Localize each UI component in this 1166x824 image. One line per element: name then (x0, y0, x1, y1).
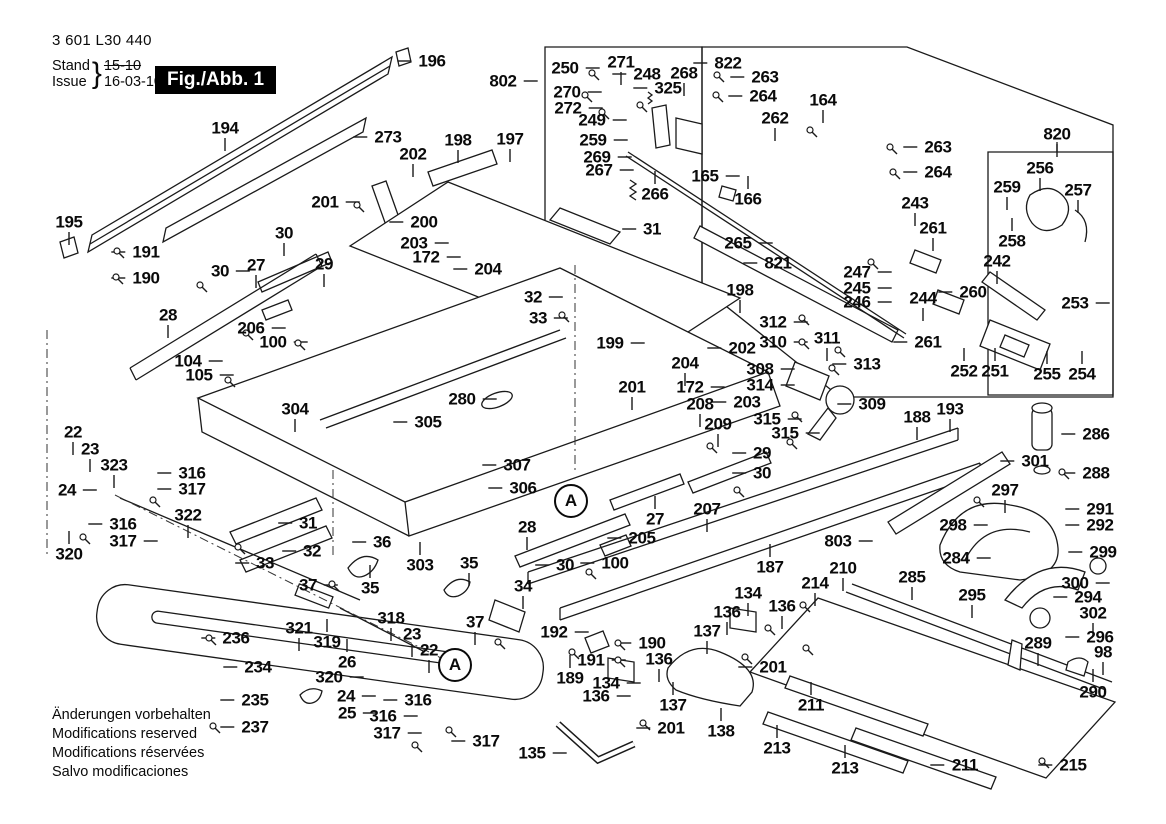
part-label-208: 208 (686, 396, 713, 413)
part-label-822: 822 (714, 55, 741, 72)
part-label-191: 191 (577, 652, 604, 669)
part-label-196: 196 (418, 53, 445, 70)
part-label-325: 325 (654, 80, 681, 97)
part-label-256: 256 (1026, 160, 1053, 177)
part-label-257: 257 (1064, 182, 1091, 199)
part-label-31: 31 (643, 221, 661, 238)
part-label-135: 135 (518, 745, 545, 762)
part-label-199: 199 (596, 335, 623, 352)
stand-label: Stand (52, 58, 90, 74)
part-label-803: 803 (824, 533, 851, 550)
part-label-105: 105 (185, 367, 212, 384)
part-label-285: 285 (898, 569, 925, 586)
part-label-306: 306 (509, 480, 536, 497)
part-label-210: 210 (829, 560, 856, 577)
figure-number-box: Fig./Abb. 1 (155, 66, 276, 94)
part-label-201: 201 (618, 379, 645, 396)
part-labels-layer: 1941951962731981972022012003020317220427… (0, 0, 1166, 824)
part-label-201: 201 (657, 720, 684, 737)
part-label-200: 200 (410, 214, 437, 231)
part-label-295: 295 (958, 587, 985, 604)
part-label-311: 311 (814, 330, 840, 347)
part-label-205: 205 (628, 530, 655, 547)
part-label-242: 242 (983, 253, 1010, 270)
part-label-265: 265 (724, 235, 751, 252)
part-label-261: 261 (914, 334, 941, 351)
part-label-204: 204 (671, 355, 698, 372)
part-label-35: 35 (460, 555, 478, 572)
part-label-195: 195 (55, 214, 82, 231)
part-label-261: 261 (919, 220, 946, 237)
part-label-235: 235 (241, 692, 268, 709)
part-label-317: 317 (178, 481, 205, 498)
part-label-198: 198 (444, 132, 471, 149)
part-label-286: 286 (1082, 426, 1109, 443)
issue-date: 16-03-10 (104, 74, 162, 90)
part-label-213: 213 (763, 740, 790, 757)
part-label-23: 23 (81, 441, 99, 458)
part-label-318: 318 (377, 610, 404, 627)
part-label-172: 172 (412, 249, 439, 266)
part-label-314: 314 (746, 377, 773, 394)
part-label-234: 234 (244, 659, 271, 676)
part-label-301: 301 (1021, 453, 1048, 470)
part-label-280: 280 (448, 391, 475, 408)
part-label-264: 264 (749, 88, 776, 105)
part-label-313: 313 (853, 356, 880, 373)
part-label-323: 323 (100, 457, 127, 474)
part-label-202: 202 (399, 146, 426, 163)
part-label-304: 304 (281, 401, 308, 418)
part-label-213: 213 (831, 760, 858, 777)
part-label-266: 266 (641, 186, 668, 203)
part-label-263: 263 (924, 139, 951, 156)
notice-line-es: Salvo modificaciones (52, 763, 211, 782)
part-label-209: 209 (704, 416, 731, 433)
part-label-309: 309 (858, 396, 885, 413)
part-label-164: 164 (809, 92, 836, 109)
part-label-305: 305 (414, 414, 441, 431)
part-label-34: 34 (514, 578, 532, 595)
part-label-244: 244 (909, 290, 936, 307)
part-label-191: 191 (132, 244, 159, 261)
part-label-317: 317 (373, 725, 400, 742)
part-label-30: 30 (556, 557, 574, 574)
part-label-303: 303 (406, 557, 433, 574)
part-label-316: 316 (404, 692, 431, 709)
part-label-31: 31 (299, 515, 317, 532)
part-label-24: 24 (337, 688, 355, 705)
part-label-246: 246 (843, 294, 870, 311)
part-label-802: 802 (489, 73, 516, 90)
part-label-37: 37 (299, 577, 317, 594)
part-label-207: 207 (693, 501, 720, 518)
part-label-30: 30 (275, 225, 293, 242)
part-label-30: 30 (211, 263, 229, 280)
notice-line-en: Modifications reserved (52, 725, 211, 744)
part-label-251: 251 (981, 363, 1008, 380)
part-label-252: 252 (950, 363, 977, 380)
part-label-262: 262 (761, 110, 788, 127)
part-label-236: 236 (222, 630, 249, 647)
part-label-189: 189 (556, 670, 583, 687)
notice-line-de: Änderungen vorbehalten (52, 706, 211, 725)
part-label-258: 258 (998, 233, 1025, 250)
part-label-24: 24 (58, 482, 76, 499)
part-label-136: 136 (645, 651, 672, 668)
part-label-165: 165 (691, 168, 718, 185)
part-label-215: 215 (1059, 757, 1086, 774)
part-label-138: 138 (707, 723, 734, 740)
part-label-253: 253 (1061, 295, 1088, 312)
part-label-136: 136 (713, 604, 740, 621)
part-label-297: 297 (991, 482, 1018, 499)
part-label-312: 312 (759, 314, 786, 331)
part-label-98: 98 (1094, 644, 1112, 661)
part-label-100: 100 (259, 334, 286, 351)
part-label-202: 202 (728, 340, 755, 357)
part-label-316: 316 (369, 708, 396, 725)
part-label-204: 204 (474, 261, 501, 278)
part-label-316: 316 (109, 516, 136, 533)
part-label-188: 188 (903, 409, 930, 426)
part-label-214: 214 (801, 575, 828, 592)
part-label-289: 289 (1024, 635, 1051, 652)
part-label-187: 187 (756, 559, 783, 576)
part-label-22: 22 (420, 642, 438, 659)
part-label-137: 137 (693, 623, 720, 640)
part-label-310: 310 (759, 334, 786, 351)
part-label-237: 237 (241, 719, 268, 736)
part-label-821: 821 (764, 255, 791, 272)
part-label-250: 250 (551, 60, 578, 77)
part-label-290: 290 (1079, 684, 1106, 701)
part-label-319: 319 (313, 634, 340, 651)
part-label-32: 32 (524, 289, 542, 306)
catalog-number: 3 601 L30 440 (52, 32, 162, 49)
part-label-29: 29 (753, 445, 771, 462)
part-label-260: 260 (959, 284, 986, 301)
part-label-22: 22 (64, 424, 82, 441)
part-label-307: 307 (503, 457, 530, 474)
part-label-30: 30 (753, 465, 771, 482)
part-label-320: 320 (55, 546, 82, 563)
part-label-100: 100 (601, 555, 628, 572)
part-label-243: 243 (901, 195, 928, 212)
part-label-32: 32 (303, 543, 321, 560)
notice-line-fr: Modifications réservées (52, 744, 211, 763)
part-label-320: 320 (315, 669, 342, 686)
old-date: 15-10 (104, 58, 162, 74)
part-label-203: 203 (733, 394, 760, 411)
part-label-28: 28 (159, 307, 177, 324)
part-label-198: 198 (726, 282, 753, 299)
part-label-259: 259 (993, 179, 1020, 196)
part-label-315: 315 (771, 425, 798, 442)
title-block: 3 601 L30 440 Stand Issue } 15-10 16-03-… (52, 32, 162, 91)
brace-glyph: } (92, 57, 102, 91)
part-label-172: 172 (676, 379, 703, 396)
part-label-33: 33 (256, 555, 274, 572)
part-label-197: 197 (496, 131, 523, 148)
part-label-299: 299 (1089, 544, 1116, 561)
part-label-190: 190 (132, 270, 159, 287)
part-label-193: 193 (936, 401, 963, 418)
detail-marker-A: A (438, 648, 472, 682)
part-label-264: 264 (924, 164, 951, 181)
modification-notice: Änderungen vorbehalten Modifications res… (52, 706, 211, 782)
part-label-27: 27 (646, 511, 664, 528)
part-label-288: 288 (1082, 465, 1109, 482)
part-label-136: 136 (582, 688, 609, 705)
part-label-192: 192 (540, 624, 567, 641)
part-label-134: 134 (734, 585, 761, 602)
part-label-201: 201 (759, 659, 786, 676)
part-label-259: 259 (579, 132, 606, 149)
part-label-271: 271 (607, 54, 634, 71)
detail-marker-A: A (554, 484, 588, 518)
part-label-284: 284 (942, 550, 969, 567)
part-label-302: 302 (1079, 605, 1106, 622)
part-label-25: 25 (338, 705, 356, 722)
part-label-23: 23 (403, 626, 421, 643)
part-label-255: 255 (1033, 366, 1060, 383)
part-label-194: 194 (211, 120, 238, 137)
part-label-137: 137 (659, 697, 686, 714)
part-label-321: 321 (285, 620, 312, 637)
part-label-33: 33 (529, 310, 547, 327)
part-label-29: 29 (315, 256, 333, 273)
part-label-211: 211 (952, 757, 978, 774)
part-label-35: 35 (361, 580, 379, 597)
part-label-37: 37 (466, 614, 484, 631)
part-label-317: 317 (472, 733, 499, 750)
part-label-263: 263 (751, 69, 778, 86)
part-label-27: 27 (247, 257, 265, 274)
part-label-201: 201 (311, 194, 338, 211)
part-label-273: 273 (374, 129, 401, 146)
part-label-136: 136 (768, 598, 795, 615)
part-label-292: 292 (1086, 517, 1113, 534)
part-label-267: 267 (585, 162, 612, 179)
part-label-298: 298 (939, 517, 966, 534)
part-label-166: 166 (734, 191, 761, 208)
part-label-322: 322 (174, 507, 201, 524)
part-label-820: 820 (1043, 126, 1070, 143)
part-label-28: 28 (518, 519, 536, 536)
part-label-317: 317 (109, 533, 136, 550)
part-label-36: 36 (373, 534, 391, 551)
part-label-249: 249 (578, 112, 605, 129)
part-label-211: 211 (798, 697, 824, 714)
parts-diagram-page: 1941951962731981972022012003020317220427… (0, 0, 1166, 824)
issue-label: Issue (52, 74, 90, 90)
part-label-254: 254 (1068, 366, 1095, 383)
